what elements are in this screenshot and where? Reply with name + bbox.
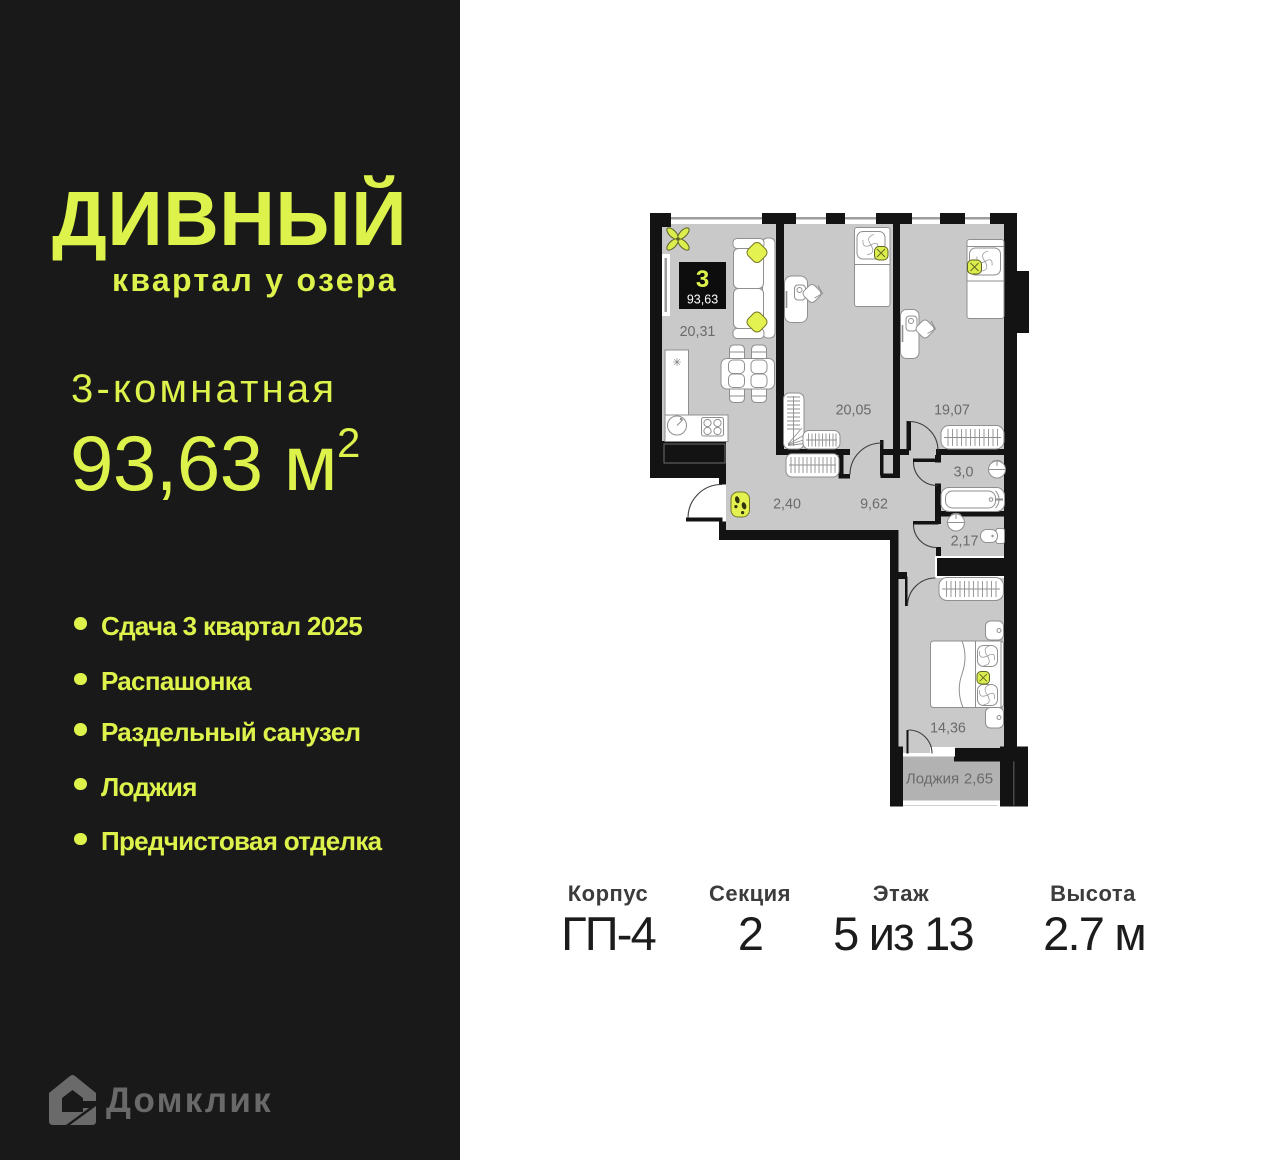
svg-text:9,62: 9,62	[860, 497, 888, 513]
svg-text:2,40: 2,40	[773, 497, 801, 513]
svg-text:2,17: 2,17	[951, 534, 979, 550]
svg-text:Лоджия: Лоджия	[906, 771, 959, 788]
svg-text:14,36: 14,36	[930, 721, 966, 737]
svg-text:3: 3	[696, 266, 709, 293]
svg-text:20,31: 20,31	[680, 324, 716, 340]
svg-text:93,63: 93,63	[687, 293, 718, 307]
svg-text:✳: ✳	[672, 357, 681, 369]
svg-text:2,65: 2,65	[964, 771, 993, 788]
svg-text:19,07: 19,07	[934, 403, 970, 419]
svg-text:20,05: 20,05	[836, 403, 872, 419]
svg-text:3,0: 3,0	[954, 465, 974, 481]
